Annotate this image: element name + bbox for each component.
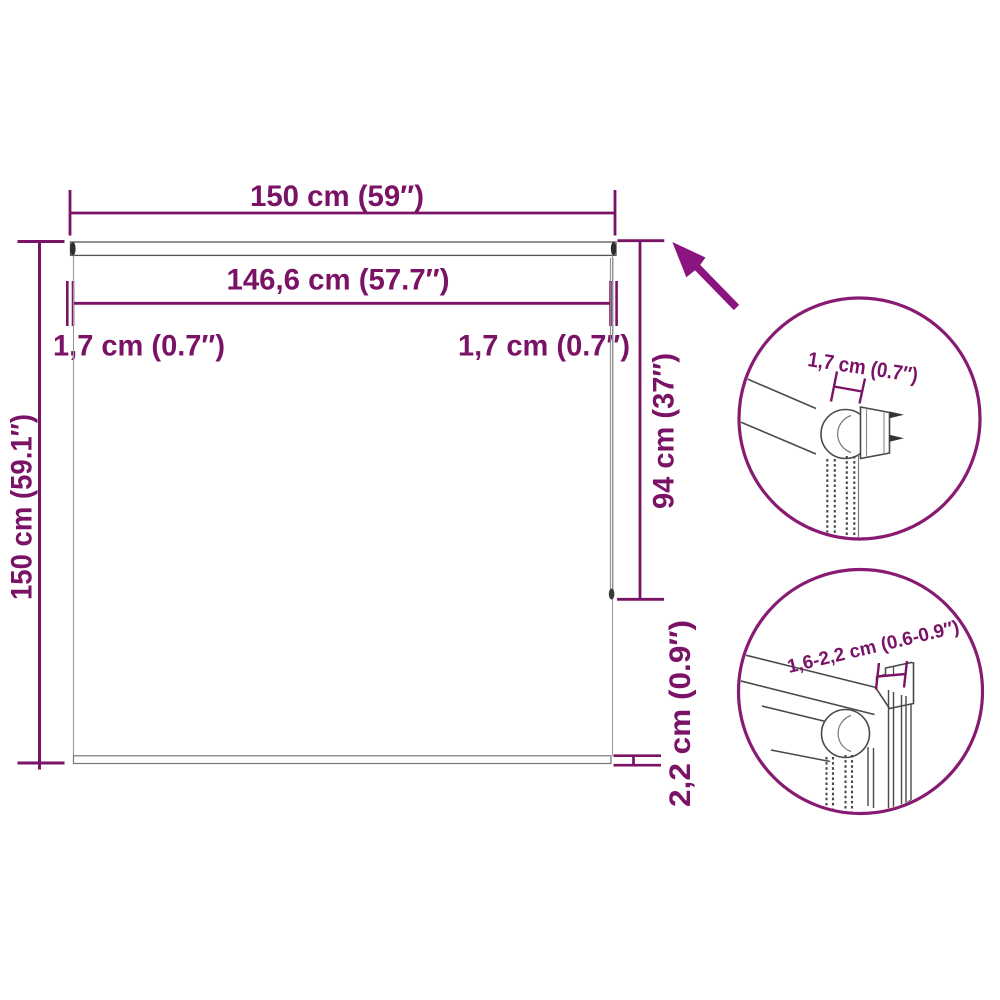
svg-text:1,7 cm (0.7″): 1,7 cm (0.7″) [458, 330, 630, 363]
svg-text:146,6 cm (57.7″): 146,6 cm (57.7″) [227, 264, 450, 297]
svg-text:150 cm (59.1″): 150 cm (59.1″) [6, 414, 39, 600]
svg-text:150 cm (59″): 150 cm (59″) [250, 180, 424, 213]
svg-text:1,7 cm (0.7″): 1,7 cm (0.7″) [53, 330, 225, 363]
svg-text:2,2 cm (0.9″): 2,2 cm (0.9″) [664, 620, 697, 807]
svg-text:94 cm (37″): 94 cm (37″) [648, 353, 681, 509]
